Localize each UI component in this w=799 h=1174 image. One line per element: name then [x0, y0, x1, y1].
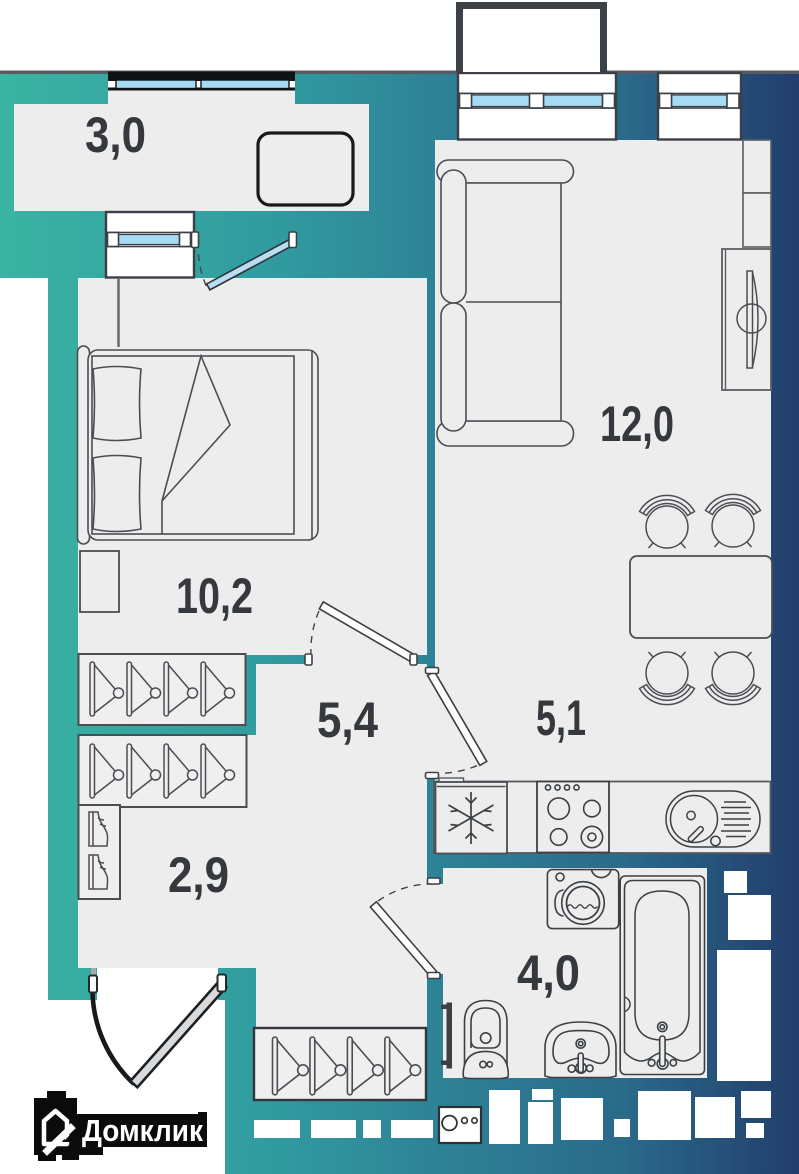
svg-text:4,0: 4,0	[517, 945, 580, 1001]
svg-text:3,0: 3,0	[85, 107, 146, 163]
svg-text:2,9: 2,9	[168, 847, 229, 903]
svg-text:12,0: 12,0	[600, 396, 674, 452]
svg-text:5,1: 5,1	[536, 690, 586, 746]
svg-text:Домклик: Домклик	[82, 1113, 203, 1148]
svg-text:10,2: 10,2	[176, 568, 253, 624]
svg-text:5,4: 5,4	[317, 692, 378, 748]
